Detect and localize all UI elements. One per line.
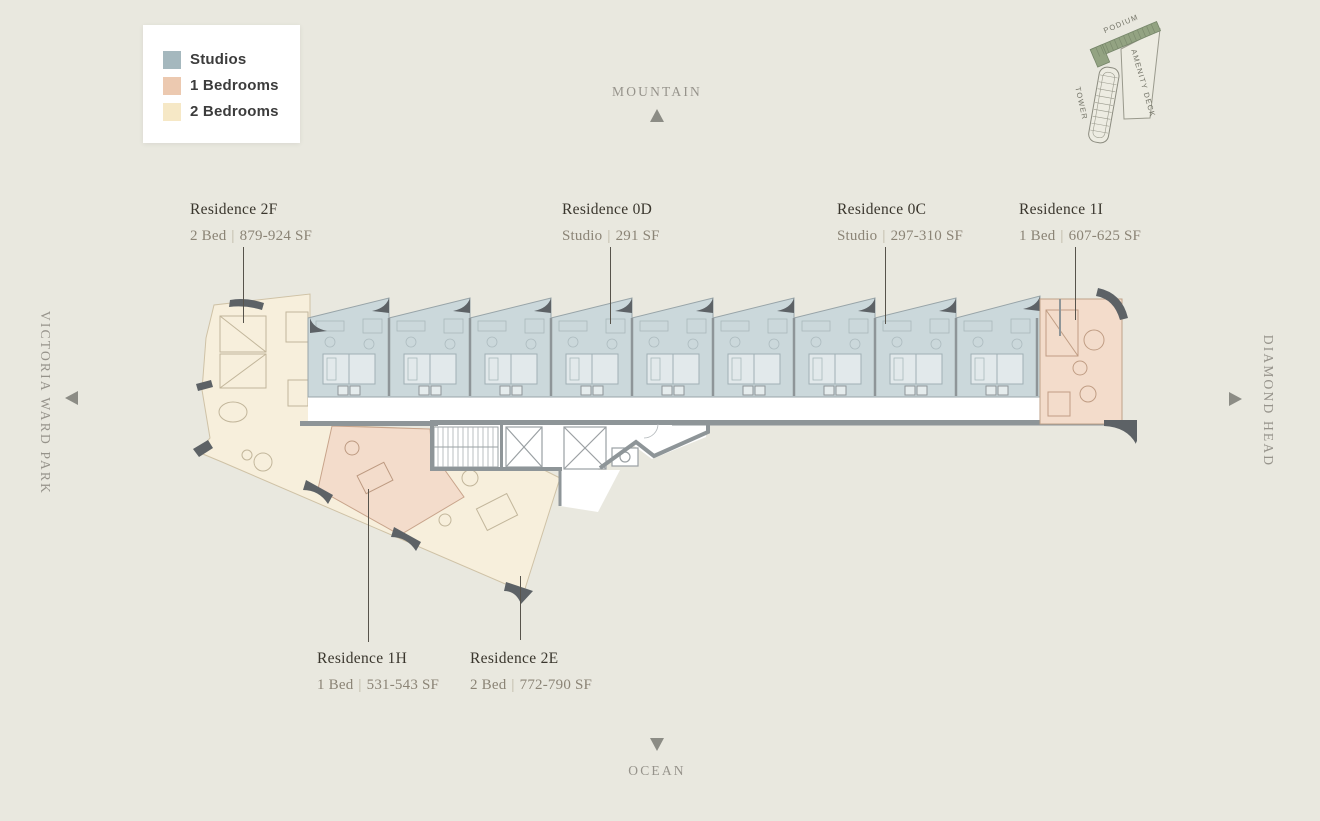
legend-label: 2 Bedrooms xyxy=(190,103,279,121)
compass-victoria-ward-park-label: VICTORIA WARD PARK xyxy=(37,311,53,495)
leader-line-0c xyxy=(885,247,886,324)
legend-item-2-bedrooms: 2 Bedrooms xyxy=(163,103,300,121)
callout-residence-1h[interactable]: Residence 1H 1 Bed|531-543 SF xyxy=(317,650,439,694)
one-bedrooms-swatch xyxy=(163,77,181,95)
leader-line-2f xyxy=(243,247,244,323)
leader-line-1i xyxy=(1075,247,1076,320)
tower-shape xyxy=(1087,66,1120,144)
stairs xyxy=(434,427,498,467)
core-hall xyxy=(560,470,620,512)
corridor xyxy=(308,396,1040,424)
victoria-ward-park-arrow-icon xyxy=(65,391,78,405)
site-minimap: PODIUM AMENITY DECK TOWER xyxy=(1073,12,1164,144)
callout-residence-0d[interactable]: Residence 0D Studio|291 SF xyxy=(562,201,660,245)
residence-title: Residence 1I xyxy=(1019,201,1141,219)
two-bedrooms-swatch xyxy=(163,103,181,121)
compass-diamond-head-label: DIAMOND HEAD xyxy=(1260,335,1276,468)
corridor-wall-left xyxy=(300,421,438,426)
legend-label: 1 Bedrooms xyxy=(190,77,279,95)
leader-line-0d xyxy=(610,247,611,324)
floorplan-page: PODIUM AMENITY DECK TOWER Studios 1 Bedr… xyxy=(0,0,1320,821)
residence-title: Residence 2F xyxy=(190,201,312,219)
compass-mountain-label: MOUNTAIN xyxy=(612,84,702,100)
ocean-arrow-icon xyxy=(650,738,664,751)
legend: Studios 1 Bedrooms 2 Bedrooms xyxy=(143,25,300,143)
residence-title: Residence 0D xyxy=(562,201,660,219)
studios-swatch xyxy=(163,51,181,69)
leader-line-2e xyxy=(520,576,521,640)
compass-ocean-label: OCEAN xyxy=(628,763,686,779)
corner-bracket-1i-bottom xyxy=(1104,420,1136,444)
callout-residence-2f[interactable]: Residence 2F 2 Bed|879-924 SF xyxy=(190,201,312,245)
residence-spec: Studio|297-310 SF xyxy=(837,228,963,245)
legend-label: Studios xyxy=(190,51,246,69)
residence-spec: 2 Bed|879-924 SF xyxy=(190,228,312,245)
callout-residence-1i[interactable]: Residence 1I 1 Bed|607-625 SF xyxy=(1019,201,1141,245)
callout-residence-0c[interactable]: Residence 0C Studio|297-310 SF xyxy=(837,201,963,245)
residence-spec: Studio|291 SF xyxy=(562,228,660,245)
leader-line-1h xyxy=(368,489,369,642)
mountain-arrow-icon xyxy=(650,109,664,122)
legend-item-1-bedrooms: 1 Bedrooms xyxy=(163,77,300,95)
legend-item-studios: Studios xyxy=(163,51,300,69)
residence-title: Residence 1H xyxy=(317,650,439,668)
diamond-head-arrow-icon xyxy=(1229,392,1242,406)
residence-title: Residence 0C xyxy=(837,201,963,219)
residence-spec: 2 Bed|772-790 SF xyxy=(470,677,592,694)
residence-spec: 1 Bed|531-543 SF xyxy=(317,677,439,694)
tower-label: TOWER xyxy=(1073,86,1089,121)
residence-spec: 1 Bed|607-625 SF xyxy=(1019,228,1141,245)
callout-residence-2e[interactable]: Residence 2E 2 Bed|772-790 SF xyxy=(470,650,592,694)
residence-title: Residence 2E xyxy=(470,650,592,668)
